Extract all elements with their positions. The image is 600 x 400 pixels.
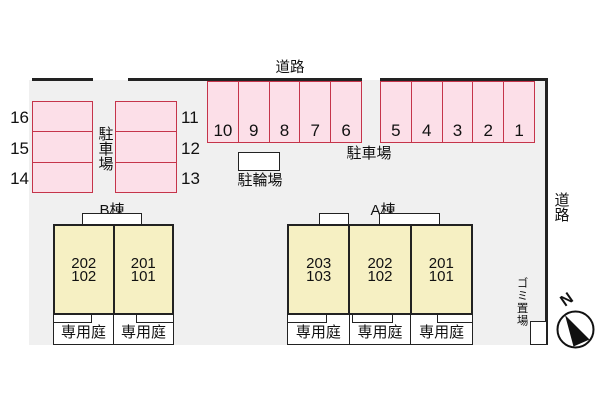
compass-n-letter: N xyxy=(557,290,576,311)
parking-space-14 xyxy=(33,162,92,192)
parking-space-13 xyxy=(116,162,176,192)
parking-space-number: 1 xyxy=(504,121,534,141)
unit-numbers: 202 102 xyxy=(71,257,96,283)
road-boundary-line-right xyxy=(545,78,548,345)
building-a-unit-201-101: 201 101 xyxy=(410,226,471,313)
private-garden-cell: 専用庭 xyxy=(54,315,113,344)
parking-space-number: 3 xyxy=(443,121,473,141)
parking-space-number: 5 xyxy=(381,121,411,141)
building-a-unit-202-102: 202 102 xyxy=(348,226,409,313)
parking-space-number: 6 xyxy=(331,121,361,141)
parking-space-number: 7 xyxy=(300,121,330,141)
building-b-unit-202-102: 202 102 xyxy=(55,226,113,313)
parking-space-8: 8 xyxy=(269,82,300,142)
private-garden-label: 専用庭 xyxy=(350,321,411,342)
parking-space-10: 10 xyxy=(208,82,238,142)
unit-number-lower: 101 xyxy=(131,270,156,283)
garbage-area-label: ゴミ置場 xyxy=(515,277,528,339)
private-garden-label: 専用庭 xyxy=(54,321,113,342)
parking-space-number: 10 xyxy=(208,121,238,141)
road-boundary-line-top-1 xyxy=(32,78,93,81)
parking-space-number: 11 xyxy=(181,108,199,128)
unit-number-lower: 102 xyxy=(71,270,96,283)
unit-number-lower: 103 xyxy=(306,270,331,283)
unit-numbers: 201 101 xyxy=(131,257,156,283)
building-b: 202 102 201 101 xyxy=(53,224,174,315)
parking-space-5: 5 xyxy=(381,82,411,142)
private-garden-label: 専用庭 xyxy=(411,321,472,342)
parking-space-number: 12 xyxy=(181,139,200,159)
building-a-unit-203-103: 203 103 xyxy=(289,226,348,313)
road-label-top: 道路 xyxy=(268,61,312,77)
building-a-garden-row: 専用庭 専用庭 専用庭 xyxy=(287,314,473,345)
parking-space-15 xyxy=(33,131,92,161)
private-garden-label: 専用庭 xyxy=(114,321,173,342)
parking-lot-label-left: 駐車場 xyxy=(96,126,113,176)
private-garden-cell: 専用庭 xyxy=(410,315,472,344)
private-garden-cell: 専用庭 xyxy=(349,315,411,344)
parking-space-number: 8 xyxy=(270,121,300,141)
parking-space-number: 14 xyxy=(6,169,29,189)
parking-space-number: 16 xyxy=(6,108,29,128)
bicycle-parking-box xyxy=(238,152,280,171)
unit-numbers: 201 101 xyxy=(429,257,454,283)
parking-lot-label-top: 駐車場 xyxy=(345,146,393,163)
parking-space-3: 3 xyxy=(442,82,473,142)
parking-space-number: 15 xyxy=(6,139,29,159)
parking-space-12 xyxy=(116,131,176,161)
road-label-right: 道路 xyxy=(552,192,569,238)
unit-numbers: 202 102 xyxy=(367,257,392,283)
unit-numbers: 203 103 xyxy=(306,257,331,283)
parking-group-top-east: 5 4 3 2 1 xyxy=(380,81,535,143)
parking-space-6: 6 xyxy=(330,82,361,142)
building-a: 203 103 202 102 201 101 xyxy=(287,224,473,315)
building-b-garden-row: 専用庭 専用庭 xyxy=(53,314,174,345)
unit-number-lower: 101 xyxy=(429,270,454,283)
parking-group-top-west: 10 9 8 7 6 xyxy=(207,81,362,143)
private-garden-cell: 専用庭 xyxy=(113,315,173,344)
parking-space-4: 4 xyxy=(411,82,442,142)
private-garden-label: 専用庭 xyxy=(288,321,349,342)
parking-space-number: 4 xyxy=(412,121,442,141)
parking-group-left-west xyxy=(32,101,93,193)
parking-space-number: 9 xyxy=(239,121,269,141)
unit-number-lower: 102 xyxy=(367,270,392,283)
building-b-unit-201-101: 201 101 xyxy=(113,226,173,313)
parking-space-number: 2 xyxy=(473,121,503,141)
parking-space-9: 9 xyxy=(238,82,269,142)
garbage-area-box xyxy=(530,321,547,345)
parking-space-1: 1 xyxy=(503,82,534,142)
parking-space-7: 7 xyxy=(299,82,330,142)
parking-space-11 xyxy=(116,102,176,131)
private-garden-cell: 専用庭 xyxy=(288,315,349,344)
parking-space-16 xyxy=(33,102,92,131)
bicycle-parking-label: 駐輪場 xyxy=(236,173,284,190)
parking-group-left-east xyxy=(115,101,177,193)
parking-space-number: 13 xyxy=(181,169,200,189)
north-compass-icon: N xyxy=(553,289,597,351)
parking-space-2: 2 xyxy=(472,82,503,142)
site-plan: 道路 道路 10 9 8 7 6 5 4 3 2 1 駐車場 16 15 14 … xyxy=(0,0,600,400)
